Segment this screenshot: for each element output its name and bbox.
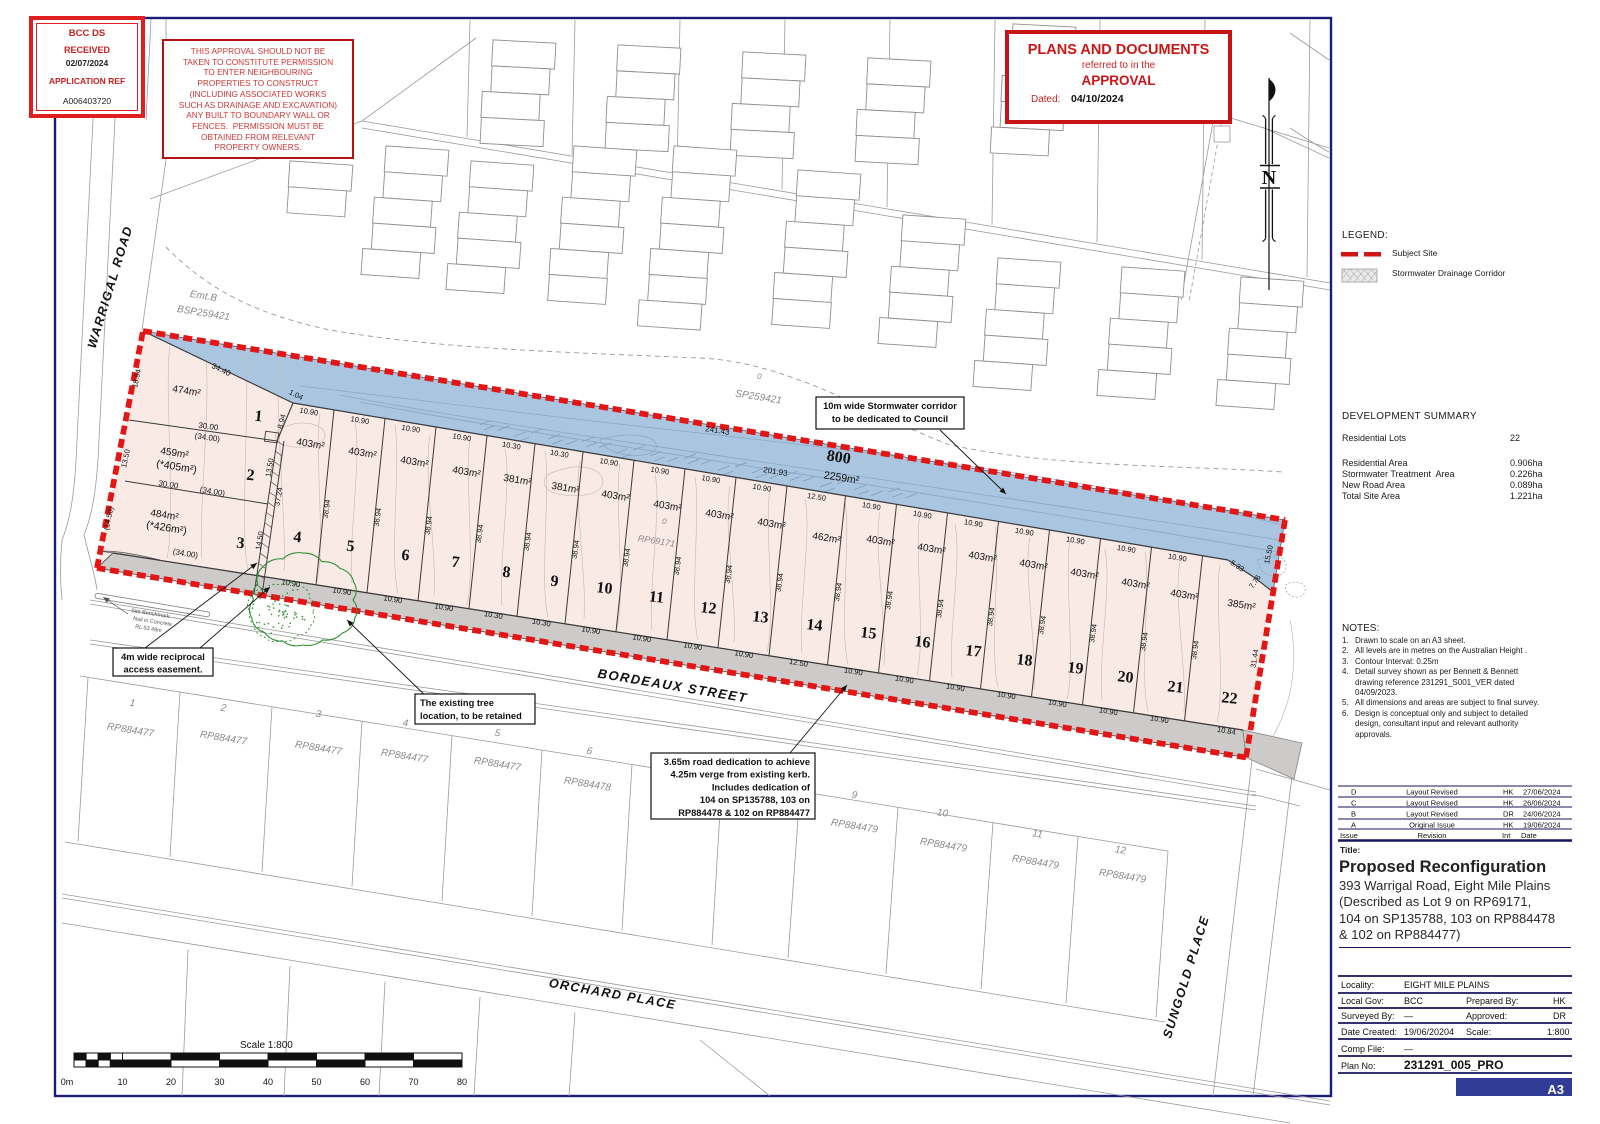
svg-text:10m wide Stormwater corridor: 10m wide Stormwater corridor [823, 401, 957, 411]
svg-text:Surveyed By:: Surveyed By: [1341, 1011, 1395, 1021]
svg-text:N: N [1262, 167, 1277, 189]
svg-text:11: 11 [1031, 828, 1043, 840]
svg-text:C: C [1351, 799, 1357, 808]
svg-text:24/06/2024: 24/06/2024 [1523, 810, 1561, 819]
svg-text:17: 17 [965, 642, 983, 661]
svg-text:20: 20 [1117, 668, 1135, 687]
svg-text:Scale:: Scale: [1466, 1027, 1491, 1037]
svg-text:3.65m road dedication to achie: 3.65m road dedication to achieve [664, 757, 810, 767]
svg-text:22: 22 [1221, 689, 1239, 708]
svg-text:30: 30 [214, 1077, 224, 1087]
svg-text:20: 20 [166, 1077, 176, 1087]
svg-text:12: 12 [700, 599, 718, 618]
svg-text:Approved:: Approved: [1466, 1011, 1507, 1021]
svg-text:Issue: Issue [1340, 831, 1358, 840]
svg-text:18: 18 [1016, 651, 1034, 670]
svg-text:4.25m verge from existing kerb: 4.25m verge from existing kerb. [670, 770, 810, 780]
svg-text:26/06/2024: 26/06/2024 [1523, 799, 1561, 808]
svg-text:Layout Revised: Layout Revised [1406, 788, 1458, 797]
svg-text:11: 11 [648, 588, 665, 606]
svg-text:HK: HK [1503, 788, 1513, 797]
svg-text:19/06/2024: 19/06/2024 [1523, 821, 1561, 830]
svg-text:A: A [1351, 821, 1356, 830]
svg-text:Layout Revised: Layout Revised [1406, 799, 1458, 808]
svg-text:Date: Date [1521, 831, 1537, 840]
svg-text:15: 15 [860, 624, 878, 643]
svg-text:10: 10 [117, 1077, 127, 1087]
svg-text:1:800: 1:800 [1547, 1027, 1570, 1037]
svg-text:Comp File:: Comp File: [1341, 1044, 1385, 1054]
svg-text:13: 13 [752, 608, 770, 627]
svg-text:HK: HK [1503, 821, 1513, 830]
svg-text:4m wide reciprocal: 4m wide reciprocal [121, 652, 205, 662]
svg-text:50: 50 [311, 1077, 321, 1087]
svg-text:0m: 0m [61, 1077, 74, 1087]
svg-text:Original Issue: Original Issue [1409, 821, 1455, 830]
svg-text:104 on SP135788, 103 on: 104 on SP135788, 103 on [700, 795, 810, 805]
svg-text:Scale 1:800: Scale 1:800 [240, 1040, 293, 1051]
svg-text:BCC: BCC [1404, 996, 1424, 1006]
svg-text:DR: DR [1503, 810, 1514, 819]
svg-text:Includes dedication of: Includes dedication of [712, 782, 811, 792]
svg-text:16: 16 [914, 633, 932, 652]
svg-text:EIGHT MILE PLAINS: EIGHT MILE PLAINS [1404, 980, 1489, 990]
svg-text:27/06/2024: 27/06/2024 [1523, 788, 1561, 797]
svg-text:12: 12 [1114, 844, 1127, 857]
svg-text:70: 70 [408, 1077, 418, 1087]
svg-text:to be dedicated to Council: to be dedicated to Council [832, 414, 948, 424]
svg-text:location, to be retained: location, to be retained [420, 711, 522, 721]
svg-text:14: 14 [806, 616, 824, 635]
svg-text:21: 21 [1167, 678, 1185, 697]
svg-text:Int: Int [1502, 831, 1511, 840]
svg-text:Plan No:: Plan No: [1341, 1061, 1376, 1071]
svg-text:Local Gov:: Local Gov: [1341, 996, 1384, 1006]
svg-text:Revision: Revision [1418, 831, 1447, 840]
svg-text:B: B [1351, 810, 1356, 819]
svg-text:D: D [1351, 788, 1357, 797]
svg-text:19/06/20204: 19/06/20204 [1404, 1027, 1454, 1037]
svg-text:—: — [1404, 1044, 1413, 1054]
svg-text:60: 60 [360, 1077, 370, 1087]
svg-text:A3: A3 [1547, 1082, 1564, 1096]
svg-text:HK: HK [1503, 799, 1513, 808]
svg-text:Locality:: Locality: [1341, 980, 1374, 990]
svg-text:40: 40 [263, 1077, 273, 1087]
svg-text:RP884478 & 102 on RP884477: RP884478 & 102 on RP884477 [678, 808, 810, 818]
svg-text:Layout Revised: Layout Revised [1406, 810, 1458, 819]
svg-text:Prepared By:: Prepared By: [1466, 996, 1519, 1006]
svg-text:—: — [1404, 1011, 1413, 1021]
svg-text:10: 10 [936, 807, 949, 820]
svg-text:10: 10 [596, 579, 614, 598]
svg-text:The existing tree: The existing tree [420, 698, 494, 708]
svg-text:19: 19 [1067, 659, 1085, 678]
svg-text:HK: HK [1553, 996, 1566, 1006]
svg-text:231291_005_PRO: 231291_005_PRO [1404, 1058, 1503, 1072]
svg-text:DR: DR [1553, 1011, 1566, 1021]
svg-text:Date Created:: Date Created: [1341, 1027, 1397, 1037]
svg-text:access easement.: access easement. [123, 664, 202, 674]
svg-text:80: 80 [457, 1077, 467, 1087]
